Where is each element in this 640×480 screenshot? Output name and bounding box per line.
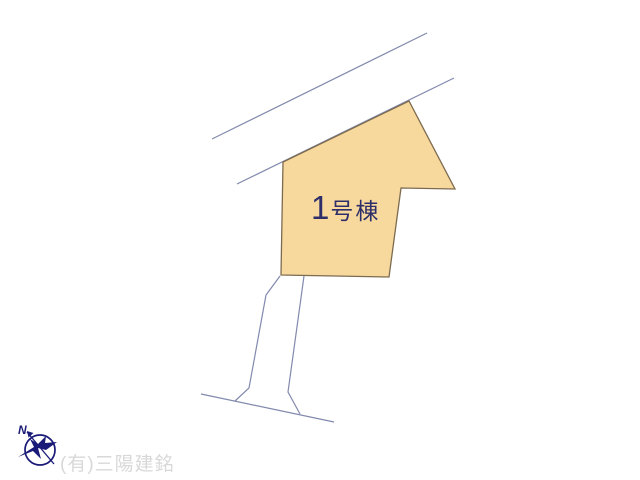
compass-north-letter: N: [18, 423, 27, 437]
site-plan-canvas: N: [0, 0, 640, 480]
driveway: [235, 276, 304, 414]
driveway-left-boundary-line: [235, 276, 280, 401]
plot-1-polygon: [281, 101, 455, 277]
site-plan: N 1号棟 (有)三陽建銘: [0, 0, 640, 480]
road-bottom-edge-line: [201, 394, 334, 422]
driveway-right-boundary-line: [288, 276, 304, 414]
compass-north-icon: N: [18, 423, 57, 465]
